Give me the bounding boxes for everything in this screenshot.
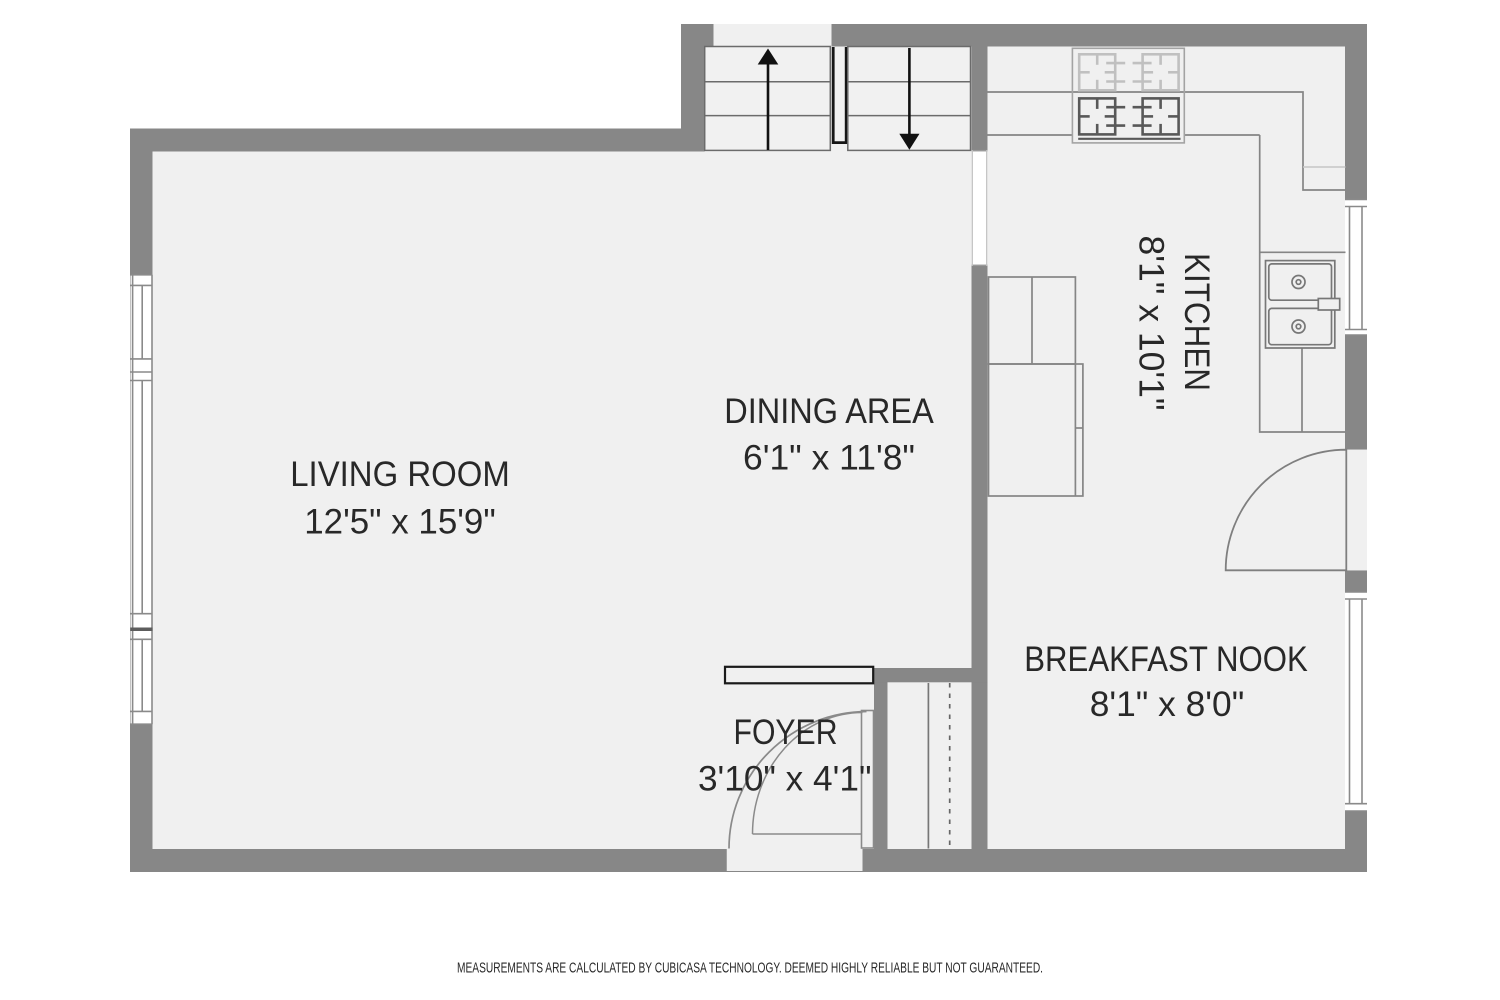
svg-text:BREAKFAST NOOK: BREAKFAST NOOK — [1024, 639, 1308, 679]
svg-text:6'1" x 11'8": 6'1" x 11'8" — [743, 438, 915, 478]
svg-text:8'1" x 8'0": 8'1" x 8'0" — [1090, 684, 1245, 724]
svg-text:8'1" x 10'1": 8'1" x 10'1" — [1132, 236, 1172, 411]
svg-text:KITCHEN: KITCHEN — [1177, 253, 1217, 391]
svg-text:3'10" x 4'1": 3'10" x 4'1" — [698, 759, 872, 799]
svg-text:MEASUREMENTS ARE CALCULATED BY: MEASUREMENTS ARE CALCULATED BY CUBICASA … — [457, 961, 1043, 977]
svg-text:LIVING ROOM: LIVING ROOM — [290, 454, 510, 494]
svg-text:DINING AREA: DINING AREA — [724, 391, 934, 431]
svg-text:12'5" x 15'9": 12'5" x 15'9" — [304, 502, 496, 542]
svg-text:FOYER: FOYER — [734, 712, 838, 752]
